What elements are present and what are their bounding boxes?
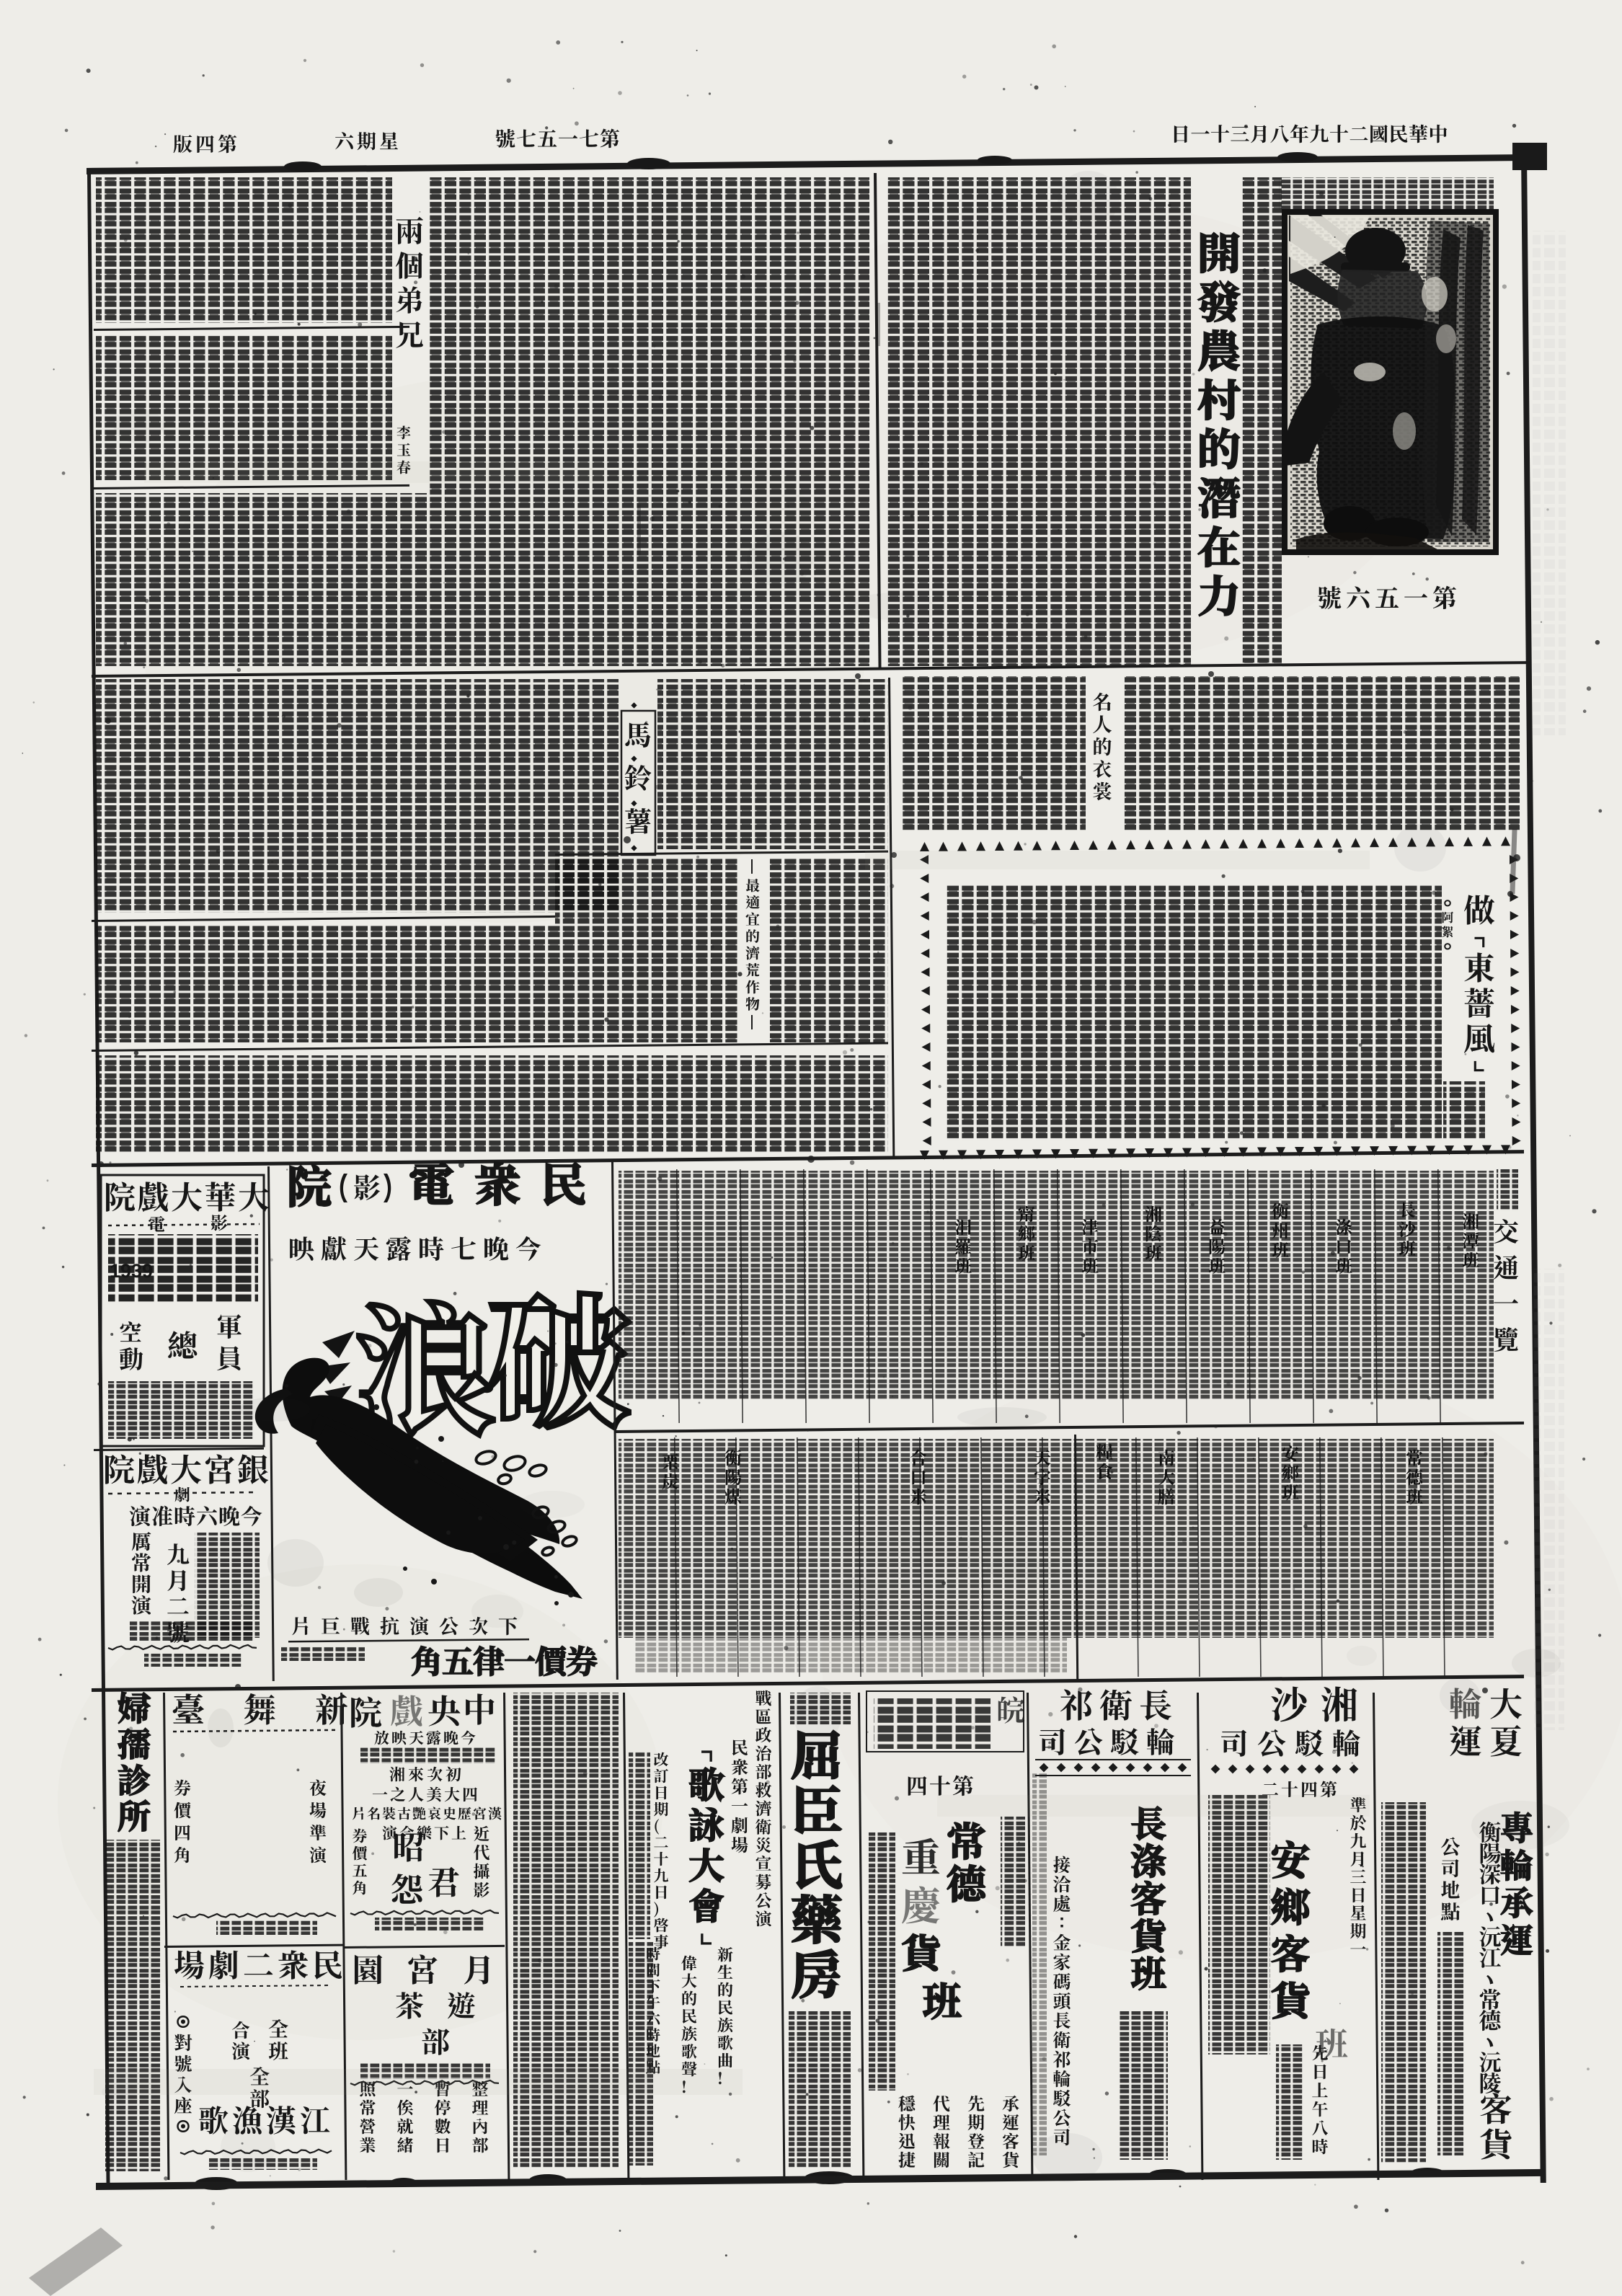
svg-text:1939: 1939: [110, 1260, 153, 1282]
